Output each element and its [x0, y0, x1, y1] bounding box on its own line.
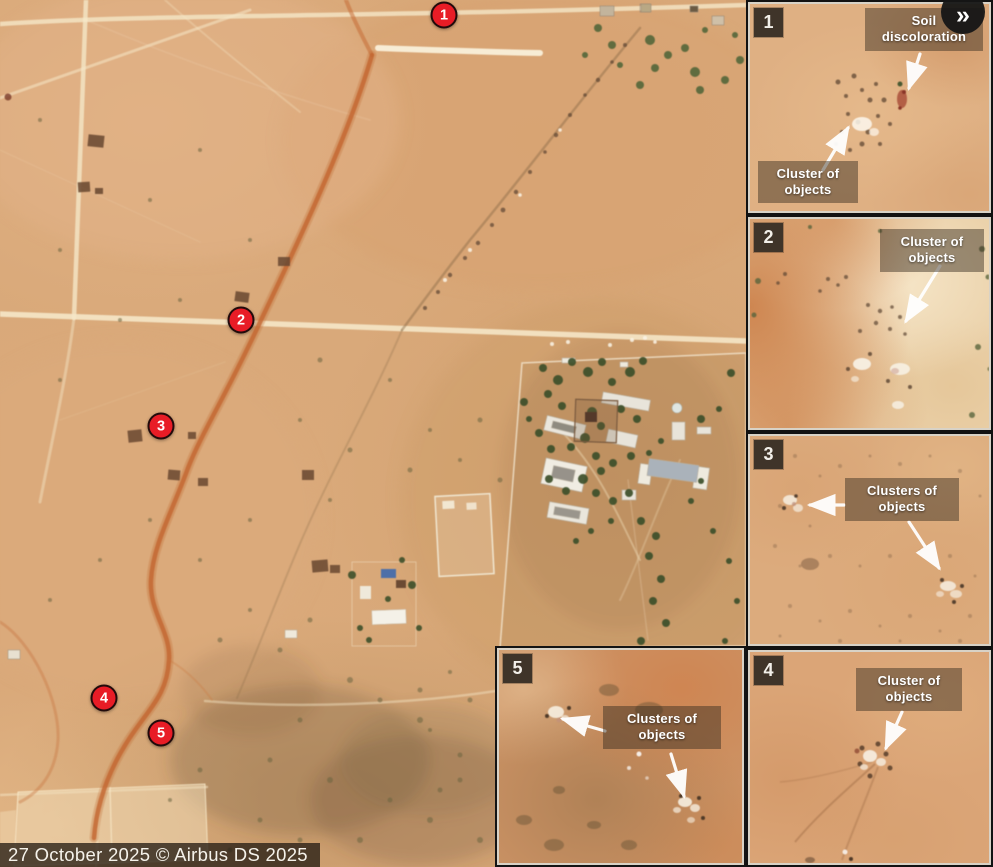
- annotation-label: Cluster of objects: [856, 668, 962, 711]
- annotation-label: Cluster of objects: [880, 229, 984, 272]
- annotation-arrow: [906, 266, 940, 321]
- annotation-arrow: [909, 522, 939, 568]
- map-marker-5[interactable]: 5: [148, 720, 175, 747]
- inset-panel-4[interactable]: Cluster of objects4: [748, 650, 991, 865]
- map-markers-layer: 12345: [0, 0, 746, 867]
- annotation-label: Clusters of objects: [845, 478, 959, 521]
- annotation-arrow: [886, 712, 902, 748]
- satellite-map[interactable]: 12345 27 October 2025 © Airbus DS 2025: [0, 0, 746, 867]
- chevron-double-right-icon: »: [956, 0, 970, 28]
- inset-panel-column: Soil discolorationCluster of objects1: [746, 0, 993, 867]
- inset-3-badge: 3: [754, 440, 783, 469]
- map-marker-3[interactable]: 3: [148, 413, 175, 440]
- inset-2-badge: 2: [754, 223, 783, 252]
- inset-panel-1[interactable]: Soil discolorationCluster of objects1: [748, 2, 991, 213]
- inset-panel-3[interactable]: Clusters of objects3: [748, 434, 991, 646]
- attribution-bar: 27 October 2025 © Airbus DS 2025: [0, 843, 320, 867]
- inset-3-annotation-arrows: [750, 436, 989, 644]
- app-root: 12345 27 October 2025 © Airbus DS 2025: [0, 0, 993, 867]
- inset-panel-2[interactable]: Cluster of objects2: [748, 217, 991, 430]
- annotation-arrow: [909, 54, 920, 88]
- map-marker-4[interactable]: 4: [91, 685, 118, 712]
- inset-1-badge: 1: [754, 8, 783, 37]
- map-marker-2[interactable]: 2: [228, 307, 255, 334]
- annotation-label: Cluster of objects: [758, 161, 858, 204]
- map-marker-1[interactable]: 1: [431, 2, 458, 29]
- inset-4-badge: 4: [754, 656, 783, 685]
